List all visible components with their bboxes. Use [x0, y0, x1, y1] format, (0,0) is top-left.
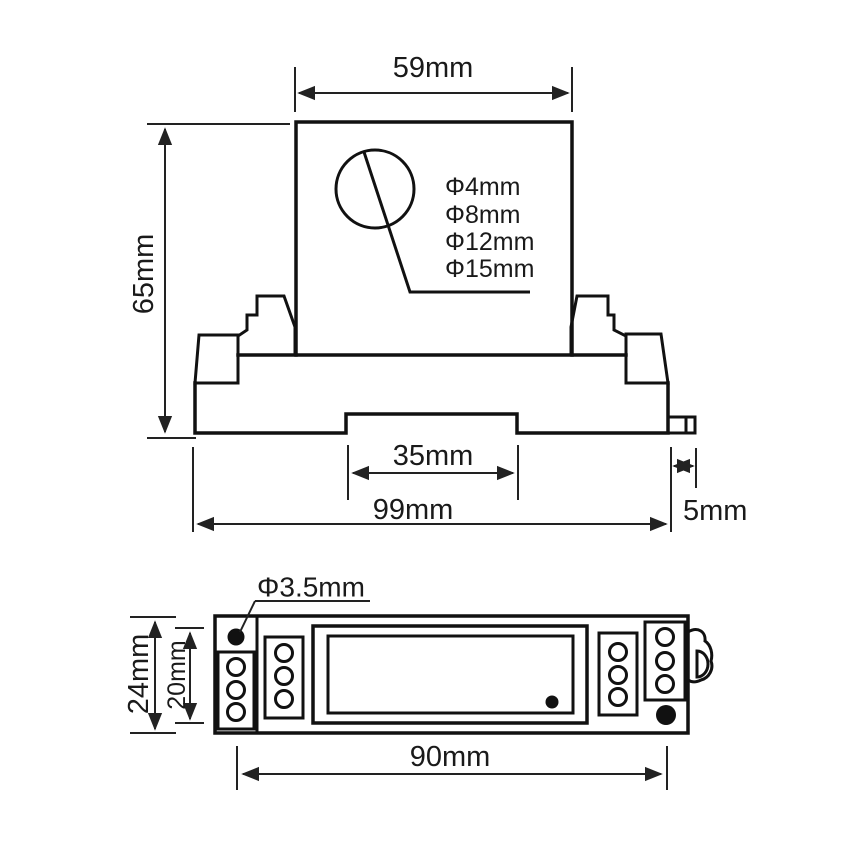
upper-right-clip [571, 296, 626, 355]
front-view: Φ4mm Φ8mm Φ12mm Φ15mm [195, 122, 695, 433]
lower-right-clip [626, 334, 668, 383]
base-outline [195, 383, 668, 433]
terminal-4-3 [657, 676, 674, 693]
lower-left-clip [195, 335, 238, 383]
terminal-3-1 [610, 644, 627, 661]
terminal-4-2 [657, 653, 674, 670]
terminal-2-1 [276, 645, 293, 662]
terminal-block-2-frame [265, 637, 303, 718]
terminal-3-3 [610, 689, 627, 706]
dim-24-label: 24mm [123, 634, 155, 715]
terminal-block-4-frame [645, 622, 685, 700]
terminal-1-1 [228, 659, 245, 676]
terminal-1-3 [228, 704, 245, 721]
dim-59-label: 59mm [393, 52, 474, 84]
terminal-1-2 [228, 682, 245, 699]
terminal-block-3-frame [599, 633, 637, 715]
terminal-block-3 [599, 633, 637, 715]
hole-diameter-label: Φ3.5mm [257, 572, 365, 603]
side-clip-bump [688, 630, 712, 682]
terminal-2-3 [276, 691, 293, 708]
dim-35-label: 35mm [393, 440, 474, 472]
drawing-svg: Φ4mm Φ8mm Φ12mm Φ15mm 59mm 65mm 35mm 99m… [0, 0, 846, 846]
din-rail-tab [668, 417, 695, 433]
terminal-block-1 [218, 652, 254, 729]
aperture-size-3: Φ12mm [445, 228, 534, 256]
terminal-4-1 [657, 629, 674, 646]
dim-90-label: 90mm [410, 741, 491, 773]
top-view [215, 616, 712, 733]
label-window-outer [313, 626, 587, 723]
technical-drawing: Φ4mm Φ8mm Φ12mm Φ15mm 59mm 65mm 35mm 99m… [0, 0, 846, 846]
dim-65-label: 65mm [128, 234, 160, 315]
terminal-block-1-frame [218, 652, 254, 729]
mounting-hole-top-left [228, 629, 245, 646]
terminal-3-2 [610, 667, 627, 684]
aperture-size-1: Φ4mm [445, 173, 521, 201]
terminal-2-2 [276, 668, 293, 685]
terminal-block-4 [645, 622, 685, 700]
upper-left-clip [238, 296, 295, 355]
label-window-inner [328, 636, 573, 713]
mounting-hole-bottom-right [656, 705, 676, 725]
indicator-dot [546, 696, 559, 709]
aperture-size-4: Φ15mm [445, 255, 534, 283]
aperture-size-2: Φ8mm [445, 201, 521, 229]
side-clip-bump-inner [697, 651, 708, 677]
dim-5-label: 5mm [683, 495, 747, 527]
dim-99-label: 99mm [373, 494, 454, 526]
dim-20-label: 20mm [163, 640, 191, 709]
terminal-block-2 [265, 637, 303, 718]
